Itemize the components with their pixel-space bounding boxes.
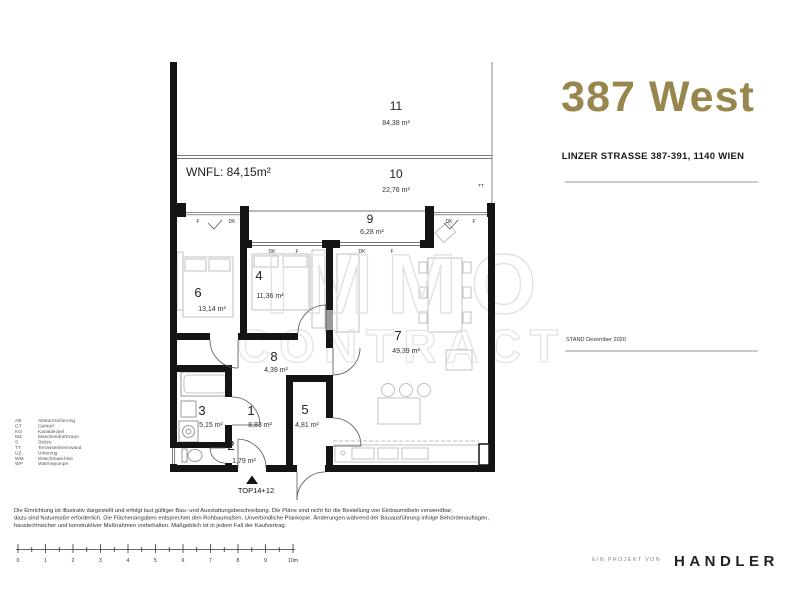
room-number-1: 1 xyxy=(247,403,254,418)
room-area-10: 22,76 m² xyxy=(382,187,410,194)
legend-label: Terrassentrennwand xyxy=(38,445,82,451)
legend-label: Gehtürl xyxy=(38,423,54,429)
disclaimer-line2: dazu sind Naturmaße erforderlich. Die Fl… xyxy=(14,515,489,522)
window-label-dk: DK xyxy=(229,219,237,225)
legend-abbr: MZ xyxy=(15,434,22,440)
room-area-5: 4,81 m² xyxy=(295,422,319,429)
wnfl-label: WNFL: 84,15m² xyxy=(186,165,271,179)
handler-logo: HANDLER xyxy=(674,553,779,570)
watermark-line2: CONTRACT xyxy=(237,320,567,372)
entrance-marker: TOP14+12 xyxy=(238,476,274,496)
room-number-3: 3 xyxy=(198,403,205,418)
scale-label: 5 xyxy=(154,558,157,564)
room-area-7: 49,39 m² xyxy=(392,348,420,355)
room-area-2: 1,79 m² xyxy=(232,458,256,465)
room-number-6: 6 xyxy=(194,285,201,300)
scale-label: 4 xyxy=(127,558,130,564)
plan-date-stand: STAND Dezember 2020 xyxy=(566,337,626,343)
window-label-f: F xyxy=(472,219,475,225)
legend-label: Kanaldeckel xyxy=(38,429,64,435)
room-number-7: 7 xyxy=(394,328,401,343)
legend-label: Unterzug xyxy=(38,450,58,456)
room-number-10: 10 xyxy=(389,167,403,181)
legend-abbr: TT xyxy=(15,445,21,451)
legend-label: Absturzsicherung xyxy=(38,418,75,424)
disclaimer-line1: Die Einrichtung ist illustrativ dargeste… xyxy=(14,508,453,514)
room-area-1: 8,83 m² xyxy=(248,422,272,429)
tt-label: TT xyxy=(478,183,484,189)
legend-abbr: S xyxy=(15,440,18,446)
entrance-triangle-icon xyxy=(246,476,258,485)
legend-abbr: KO xyxy=(15,429,22,435)
window-label-f: F xyxy=(196,219,199,225)
window-label-f: F xyxy=(295,249,298,255)
window-label-dk: DK xyxy=(446,219,454,225)
furniture-kitchen xyxy=(333,384,479,463)
project-title: 387 West xyxy=(561,73,755,121)
legend-label: Waschmaschine xyxy=(38,456,73,462)
scale-label: 0 xyxy=(17,558,20,564)
room-number-2: 2 xyxy=(227,438,234,453)
legend-abbr: WM xyxy=(15,456,24,462)
room-number-4: 4 xyxy=(255,268,262,283)
scale-label: 2 xyxy=(72,558,75,564)
garden-boundaries xyxy=(170,62,492,210)
floor-plan-sheet: IMMO CONTRACT xyxy=(0,0,800,600)
room-number-11: 11 xyxy=(390,99,403,113)
scale-label: 7 xyxy=(209,558,212,564)
scale-label: 6 xyxy=(182,558,185,564)
disclaimer: Die Einrichtung ist illustrativ dargeste… xyxy=(14,508,489,529)
room-number-9: 9 xyxy=(367,212,374,226)
legend-label: Wärmepumpe xyxy=(38,461,68,467)
project-by-label: EIN PROJEKT VON xyxy=(592,557,661,563)
entrance-top-label: TOP14+12 xyxy=(238,486,274,495)
scale-label: 8 xyxy=(237,558,240,564)
window-label-dk: DK xyxy=(359,249,367,255)
room-number-5: 5 xyxy=(301,402,308,417)
room-number-8: 8 xyxy=(270,349,277,364)
header-block: 387 West LINZER STRASSE 387-391, 1140 WI… xyxy=(561,73,758,351)
watermark-line1: IMMO xyxy=(266,237,551,331)
scale-label: 9 xyxy=(264,558,267,564)
room-area-11: 84,38 m² xyxy=(382,120,410,127)
legend-abbr: UZ xyxy=(15,450,21,456)
legend-abbr: AB xyxy=(15,418,21,424)
footer-brand: EIN PROJEKT VON HANDLER xyxy=(592,553,779,570)
window-label-f: F xyxy=(390,249,393,255)
scale-bar: 0 1 2 3 4 5 6 7 8 9 10m xyxy=(16,544,298,564)
legend-label: Maschendrahtzaun xyxy=(38,434,79,440)
room-area-3: 5,15 m² xyxy=(199,422,223,429)
scale-label: 3 xyxy=(99,558,102,564)
scale-label: 10m xyxy=(288,558,298,564)
room-area-9: 6,28 m² xyxy=(360,229,384,236)
scale-label: 1 xyxy=(44,558,47,564)
legend-abbr: GT xyxy=(15,423,22,429)
project-address: LINZER STRASSE 387-391, 1140 WIEN xyxy=(562,151,745,162)
furniture-wc-2 xyxy=(182,449,202,462)
window-label-dk: DK xyxy=(269,249,277,255)
legend: ABAbsturzsicherung GTGehtürl KOKanaldeck… xyxy=(15,418,82,467)
legend-label: Stütze xyxy=(38,440,52,446)
room-area-8: 4,39 m² xyxy=(264,367,288,374)
legend-abbr: WP xyxy=(15,461,23,467)
room-area-4: 11,36 m² xyxy=(256,293,284,300)
room-area-6: 13,14 m² xyxy=(198,306,226,313)
disclaimer-line3: haustechnischer und konstruktiver Maßnah… xyxy=(14,523,287,529)
